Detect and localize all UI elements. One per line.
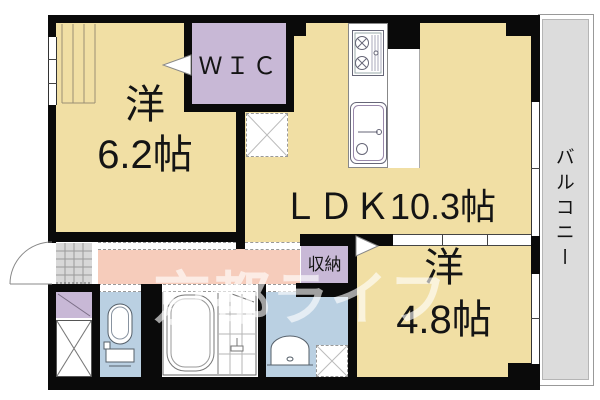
window-tick bbox=[531, 318, 540, 319]
wall-segment bbox=[48, 284, 56, 390]
ldk-label: ＬＤＫ10.3帖 bbox=[243, 184, 535, 229]
wall-segment bbox=[55, 232, 236, 242]
bedroom-6-2-name: 洋 bbox=[55, 80, 235, 130]
wall-segment bbox=[48, 15, 56, 37]
kitchen-sink-icon bbox=[350, 102, 387, 164]
washbasin-icon bbox=[266, 334, 314, 368]
wall-segment bbox=[48, 377, 540, 390]
wall-segment bbox=[508, 363, 540, 390]
refrigerator-cross bbox=[247, 114, 287, 156]
wall-segment bbox=[294, 23, 306, 36]
bedroom-6-2-label: 洋 6.2帖 bbox=[55, 80, 235, 180]
gas-stove-icon bbox=[352, 30, 384, 76]
hallway-opening-band bbox=[98, 242, 236, 250]
wall-segment bbox=[531, 236, 540, 274]
wall-segment bbox=[48, 15, 540, 23]
watermark-text: 京都ライフ bbox=[153, 252, 448, 336]
window-tick bbox=[48, 59, 57, 60]
wic-door-wedge bbox=[162, 54, 192, 76]
refrigerator-space bbox=[246, 113, 288, 157]
wall-segment bbox=[286, 23, 294, 104]
wall-segment bbox=[92, 284, 100, 390]
floor-plan: バルコニー bbox=[0, 0, 600, 400]
washing-machine-space bbox=[316, 345, 348, 377]
wall-segment bbox=[56, 284, 92, 292]
wic-label: ＷＩＣ bbox=[192, 52, 286, 82]
wall-segment bbox=[531, 22, 540, 102]
shoe-cabinet-diagonal bbox=[56, 292, 92, 318]
entrance-door-arc bbox=[6, 239, 56, 289]
window-tick bbox=[531, 168, 540, 169]
ldk-hallway-opening-band bbox=[245, 242, 300, 250]
balcony-label: バルコニー bbox=[551, 147, 575, 272]
balcony: バルコニー bbox=[538, 14, 594, 386]
kitchen-floor-strip bbox=[388, 49, 420, 168]
bedroom-6-2-size: 6.2帖 bbox=[55, 130, 235, 180]
washing-machine-cross bbox=[317, 346, 347, 376]
wall-segment bbox=[388, 22, 420, 49]
shoe-cabinet bbox=[56, 292, 92, 318]
toilet-icon bbox=[101, 298, 139, 372]
window bbox=[531, 274, 540, 364]
pipe-shaft-cross bbox=[57, 321, 91, 376]
pipe-shaft bbox=[56, 320, 92, 377]
genkan-tile bbox=[56, 243, 92, 284]
